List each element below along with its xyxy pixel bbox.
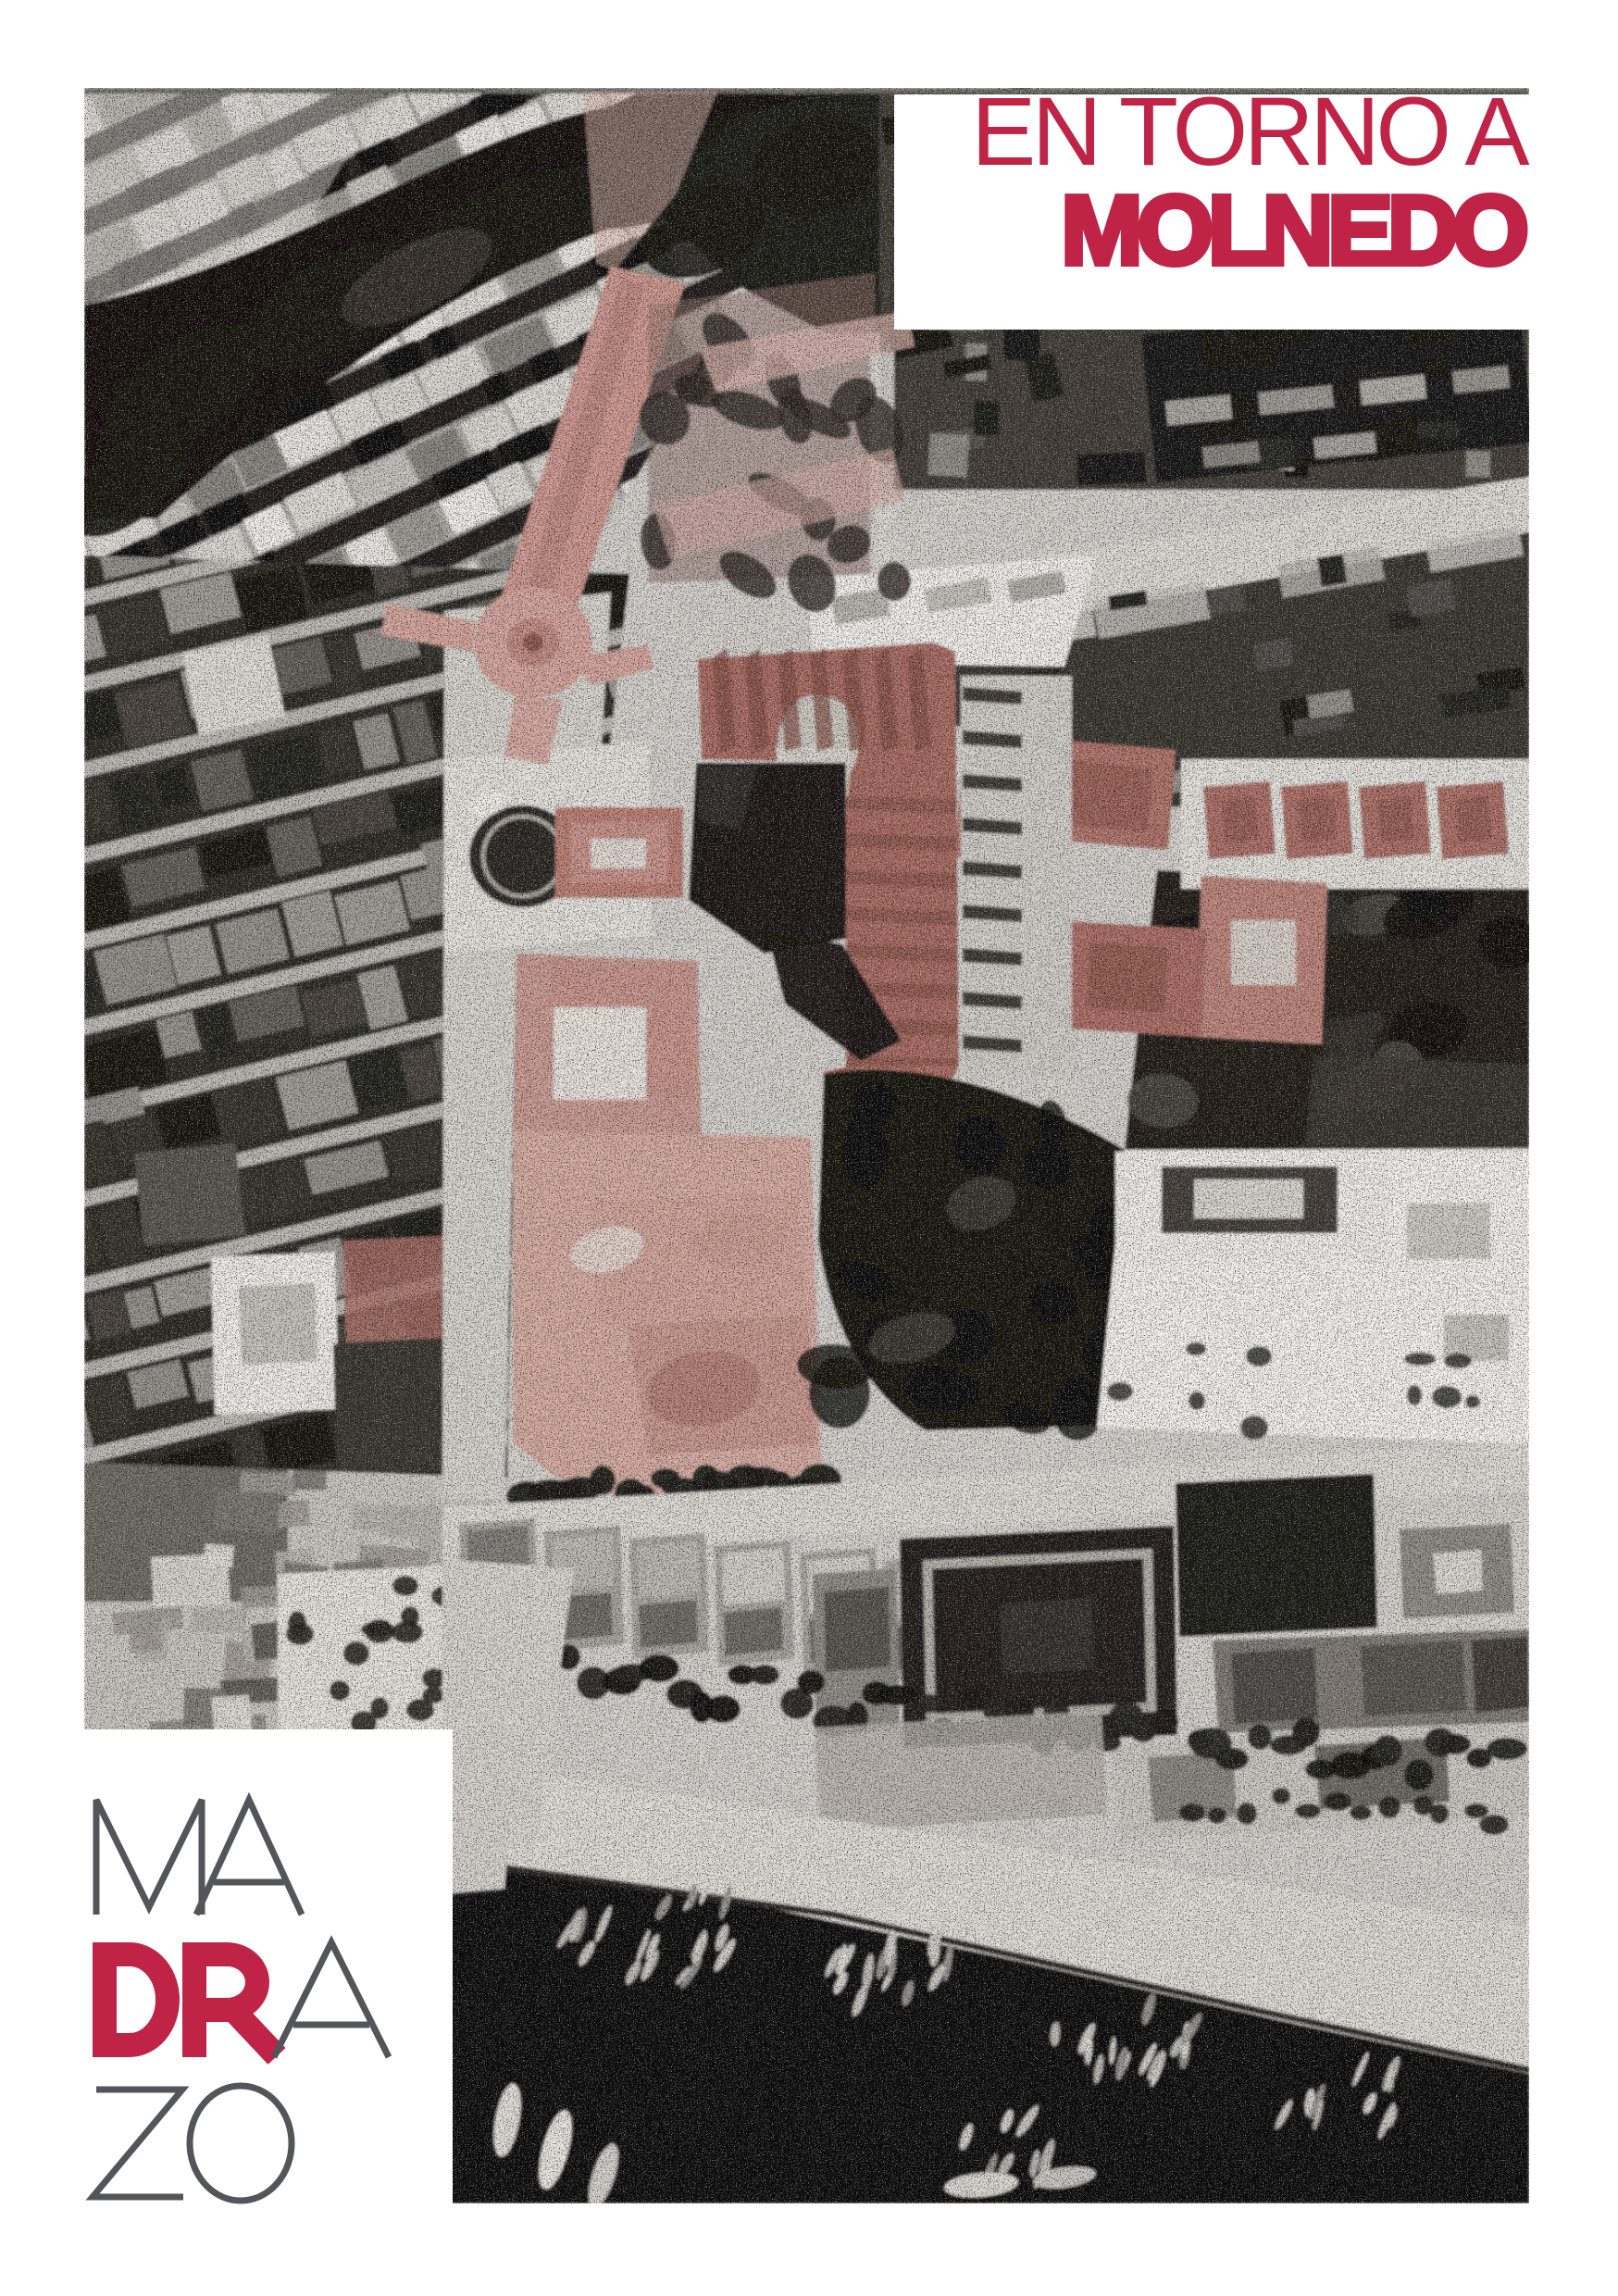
svg-text:EN TORNO A: EN TORNO A (971, 78, 1529, 186)
svg-text:MOLNEDO: MOLNEDO (1061, 176, 1525, 285)
